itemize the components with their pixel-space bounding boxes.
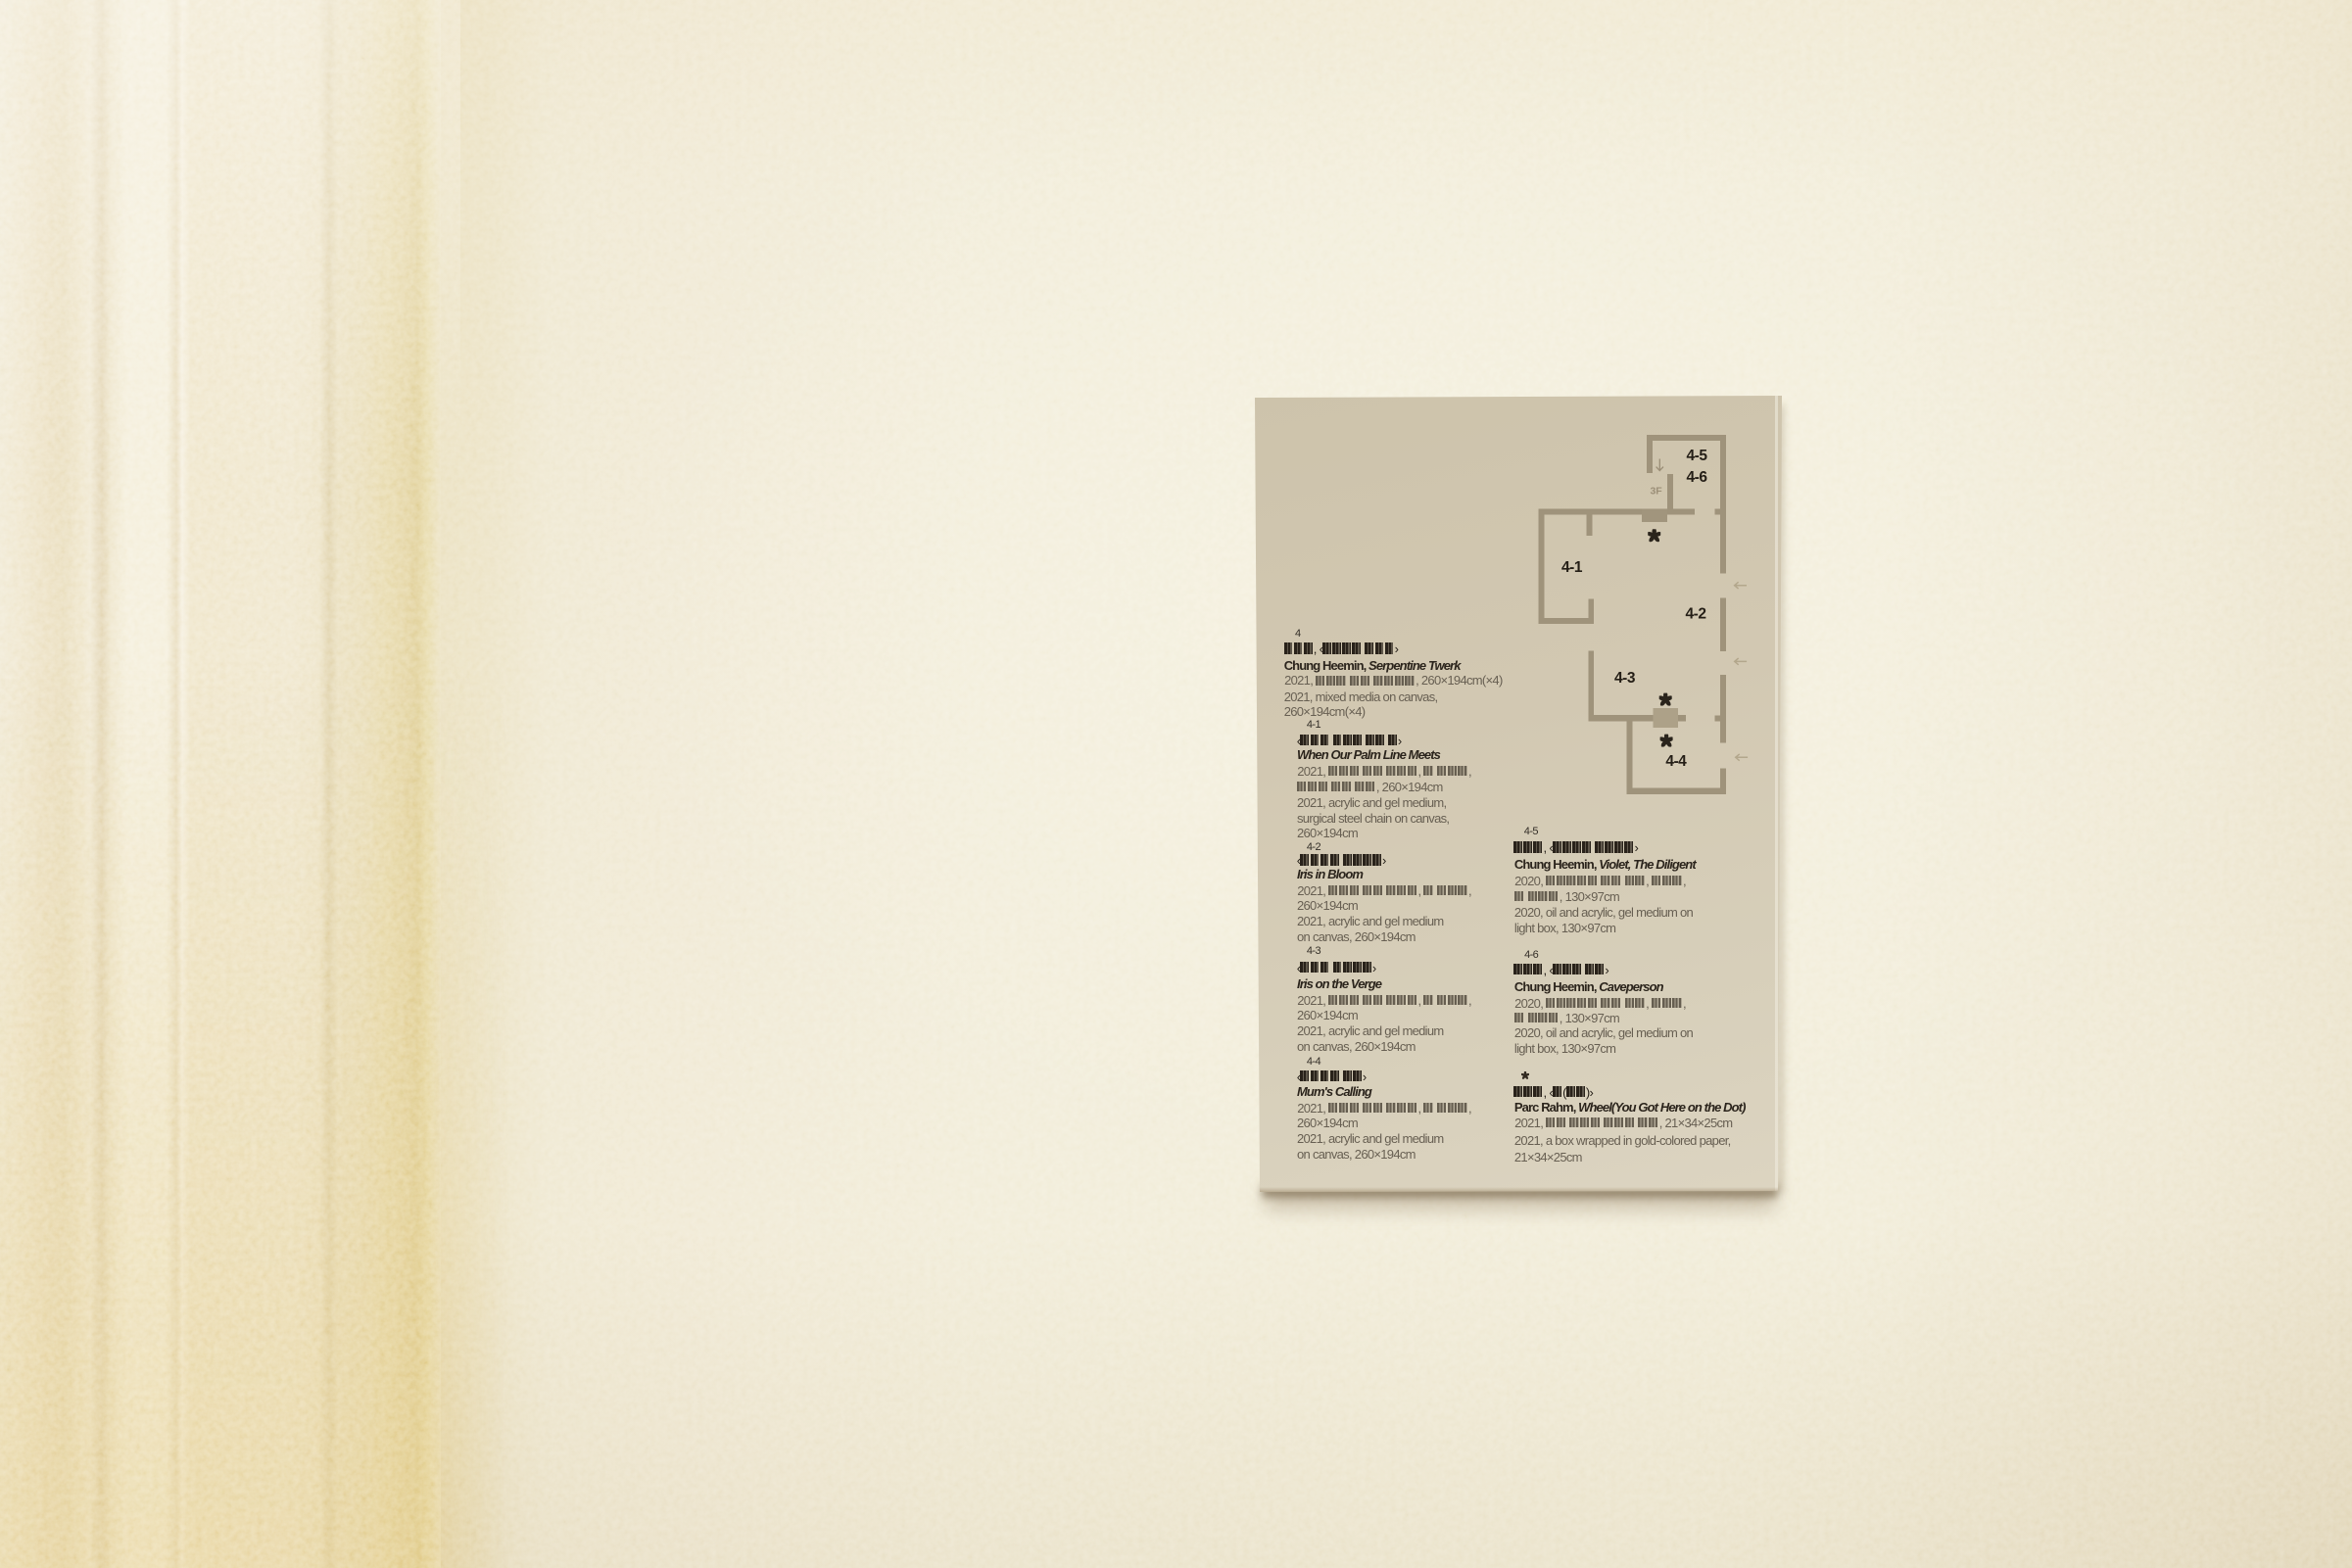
svg-text:4-6: 4-6 bbox=[1687, 469, 1708, 486]
svg-text:4-4: 4-4 bbox=[1665, 753, 1687, 770]
svg-text:4-2: 4-2 bbox=[1686, 606, 1706, 623]
svg-text:4-5: 4-5 bbox=[1687, 448, 1708, 464]
svg-text:3F: 3F bbox=[1650, 486, 1662, 498]
svg-text:4-1: 4-1 bbox=[1561, 559, 1583, 576]
svg-text:4-3: 4-3 bbox=[1614, 670, 1636, 687]
